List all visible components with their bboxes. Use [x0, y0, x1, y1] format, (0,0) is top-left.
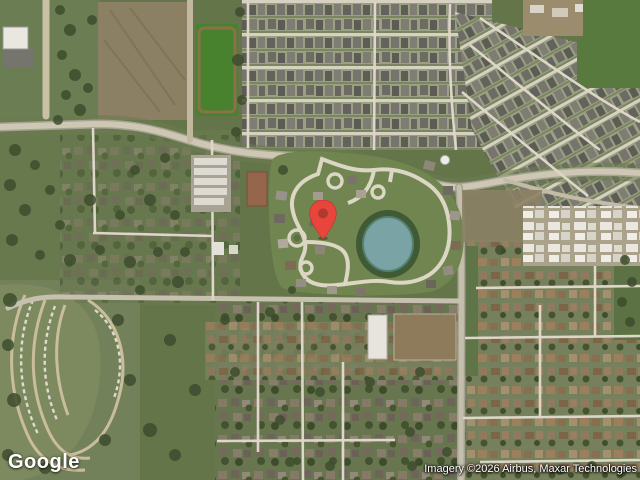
neighborhood-pond [363, 217, 413, 271]
google-logo[interactable]: Google [8, 451, 80, 474]
brick-building [247, 172, 267, 206]
warehouse-building [3, 27, 28, 49]
location-pin-icon [309, 200, 337, 240]
location-pin[interactable] [309, 200, 337, 240]
long-white-building [368, 315, 387, 359]
imagery-attribution: Imagery ©2026 Airbus, Maxar Technologies [424, 463, 637, 475]
water-tank [441, 156, 450, 165]
satellite-map-viewport[interactable]: Google Imagery ©2026 Airbus, Maxar Techn… [0, 0, 640, 480]
